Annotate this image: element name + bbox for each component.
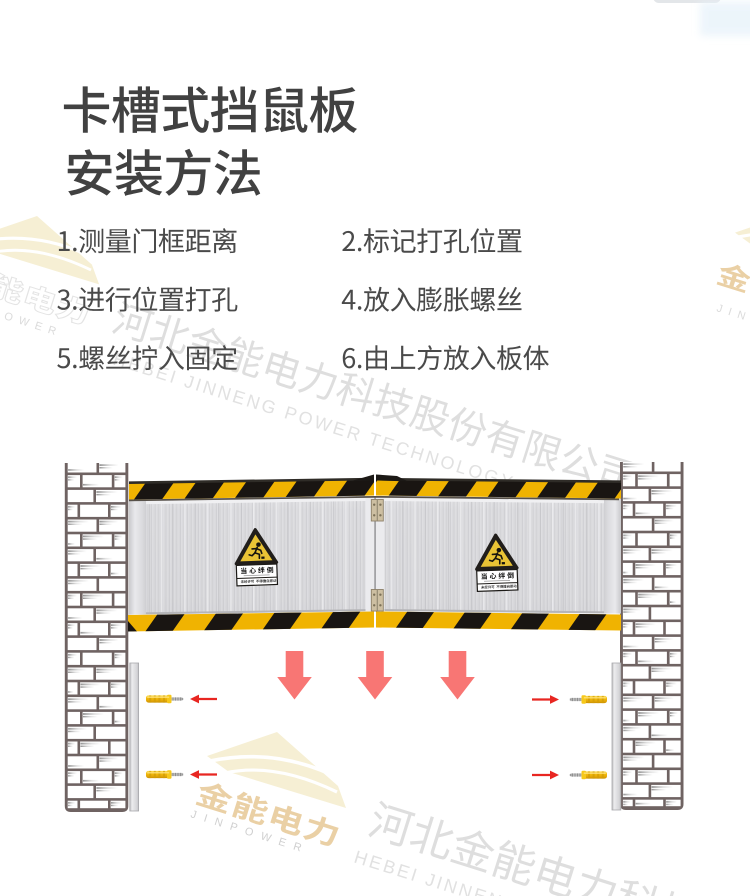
svg-text:JINPOWER: JINPOWER [715, 302, 750, 346]
svg-text:JINPOWER: JINPOWER [0, 295, 64, 339]
